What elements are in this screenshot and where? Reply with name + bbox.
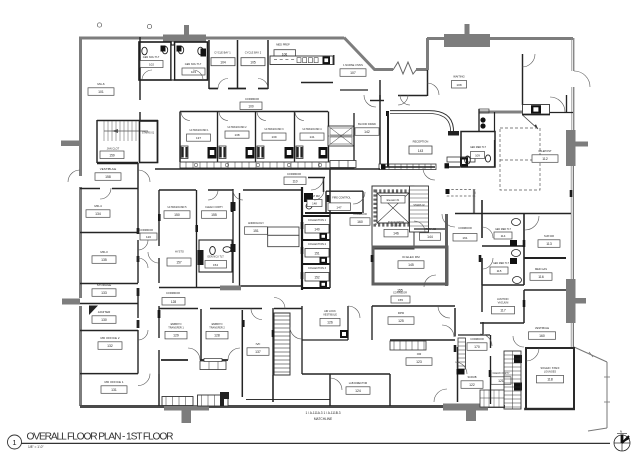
svg-text:143: 143 xyxy=(418,149,424,153)
svg-text:132: 132 xyxy=(107,344,113,348)
svg-text:133: 133 xyxy=(101,291,107,295)
svg-text:TRANSFER 2: TRANSFER 2 xyxy=(209,327,225,330)
svg-text:CORRIDOR: CORRIDOR xyxy=(245,97,259,101)
svg-text:118: 118 xyxy=(547,377,553,381)
svg-text:125: 125 xyxy=(398,319,404,323)
svg-text:FIRE CONTROL: FIRE CONTROL xyxy=(332,196,351,199)
svg-text:MED GAS: MED GAS xyxy=(535,267,547,271)
svg-text:STORAGE: STORAGE xyxy=(97,283,112,287)
svg-text:131: 131 xyxy=(111,388,117,392)
svg-text:SUP-DR: SUP-DR xyxy=(544,234,554,238)
svg-text:CORRIDOR: CORRIDOR xyxy=(470,338,484,341)
svg-text:Elevator #1: Elevator #1 xyxy=(387,199,400,202)
svg-text:VESTIBULE: VESTIBULE xyxy=(535,326,550,330)
svg-text:122: 122 xyxy=(469,383,475,387)
svg-text:MD-4: MD-4 xyxy=(94,204,102,208)
svg-text:MD-3: MD-3 xyxy=(100,250,108,254)
svg-text:IVF: IVF xyxy=(256,342,261,346)
svg-text:102: 102 xyxy=(149,63,154,67)
svg-text:154: 154 xyxy=(213,263,218,267)
svg-text:ULTRASOUND 3: ULTRASOUND 3 xyxy=(264,128,284,131)
svg-text:116: 116 xyxy=(538,275,544,279)
svg-text:GEN MED TLT: GEN MED TLT xyxy=(495,228,511,231)
svg-text:142: 142 xyxy=(364,130,370,134)
svg-text:135: 135 xyxy=(101,258,107,262)
svg-text:145: 145 xyxy=(408,263,414,267)
svg-text:ID ELEC RM: ID ELEC RM xyxy=(402,255,420,259)
svg-text:CLEAN / DIRTY: CLEAN / DIRTY xyxy=(205,206,223,209)
svg-text:RECEPTION: RECEPTION xyxy=(413,140,429,144)
svg-text:123: 123 xyxy=(416,360,422,364)
svg-text:STORAGE: STORAGE xyxy=(424,228,437,231)
svg-text:130: 130 xyxy=(101,318,107,322)
svg-text:ULTRASOUND 4: ULTRASOUND 4 xyxy=(302,128,322,131)
svg-text:LAB DIRECTOR: LAB DIRECTOR xyxy=(349,382,368,385)
svg-text:155: 155 xyxy=(398,298,403,302)
svg-text:ULTRASOUND 1: ULTRASOUND 1 xyxy=(189,129,209,132)
svg-text:ANDROLOGY: ANDROLOGY xyxy=(248,222,264,225)
svg-text:RST RM: RST RM xyxy=(310,195,319,198)
svg-text:ROOM: ROOM xyxy=(392,225,400,228)
svg-text:JANITER: JANITER xyxy=(98,310,111,314)
svg-text:CORRIDOR: CORRIDOR xyxy=(458,227,472,230)
svg-text:157: 157 xyxy=(176,261,182,265)
svg-text:MATCHLINE: MATCHLINE xyxy=(314,417,332,421)
svg-text:141: 141 xyxy=(309,135,314,139)
svg-text:JAN CLOT: JAN CLOT xyxy=(107,147,120,151)
svg-text:VESTIBULE: VESTIBULE xyxy=(100,167,117,171)
svg-text:AIR LOCK: AIR LOCK xyxy=(324,310,336,313)
svg-text:COLLECTION 1: COLLECTION 1 xyxy=(308,219,327,222)
svg-text:120: 120 xyxy=(146,235,151,239)
svg-text:159: 159 xyxy=(109,153,115,157)
svg-text:124: 124 xyxy=(355,389,361,393)
svg-text:CORRIDOR: CORRIDOR xyxy=(393,291,407,295)
svg-text:140: 140 xyxy=(314,228,320,232)
svg-text:151: 151 xyxy=(253,229,259,233)
svg-text:ID ELEVATOR: ID ELEVATOR xyxy=(388,221,404,224)
svg-text:HYSTO: HYSTO xyxy=(175,250,184,254)
svg-text:ULTRASOUND 5: ULTRASOUND 5 xyxy=(167,206,187,209)
svg-text:155: 155 xyxy=(211,213,217,217)
svg-text:CORRIDOR: CORRIDOR xyxy=(139,228,153,232)
svg-text:ULTRASOUND 2: ULTRASOUND 2 xyxy=(227,126,247,129)
svg-text:104: 104 xyxy=(220,60,226,64)
svg-text:128: 128 xyxy=(214,333,220,337)
svg-text:SCRUB: SCRUB xyxy=(467,375,476,379)
svg-text:144: 144 xyxy=(427,235,433,239)
svg-text:109: 109 xyxy=(475,154,480,158)
svg-text:160: 160 xyxy=(357,220,363,224)
svg-text:147: 147 xyxy=(336,205,341,209)
svg-text:WAITING: WAITING xyxy=(453,75,464,79)
svg-text:CORRIDOR: CORRIDOR xyxy=(166,291,180,295)
svg-text:115: 115 xyxy=(497,269,502,273)
svg-text:139: 139 xyxy=(271,135,276,139)
svg-text:152: 152 xyxy=(314,276,320,280)
svg-text:MED PREP: MED PREP xyxy=(276,43,290,47)
svg-text:EMBRYO: EMBRYO xyxy=(212,323,223,326)
svg-text:CYCLE BAY 2: CYCLE BAY 2 xyxy=(245,51,262,55)
svg-text:GEN MED TLT: GEN MED TLT xyxy=(493,262,509,265)
svg-text:SOILED / STAFF: SOILED / STAFF xyxy=(541,367,560,370)
svg-text:137: 137 xyxy=(255,350,261,354)
svg-text:129: 129 xyxy=(173,333,179,337)
svg-text:N: N xyxy=(620,430,622,434)
svg-text:114: 114 xyxy=(501,234,506,238)
svg-text:CORRIDOR: CORRIDOR xyxy=(287,172,301,176)
svg-text:MD OFFICE 2: MD OFFICE 2 xyxy=(100,336,119,340)
svg-text:OVERALL FLOOR PLAN - 1ST FLOOR: OVERALL FLOOR PLAN - 1ST FLOOR xyxy=(27,432,174,443)
svg-text:100: 100 xyxy=(248,105,254,109)
svg-text:VESTIBULE: VESTIBULE xyxy=(323,314,337,317)
svg-text:GEN NCU TLT: GEN NCU TLT xyxy=(185,63,202,66)
svg-text:GEN MED TLT: GEN MED TLT xyxy=(470,146,486,149)
svg-text:JANITOR /: JANITOR / xyxy=(497,298,509,301)
svg-text:STAIRS 01: STAIRS 01 xyxy=(142,132,155,135)
svg-text:GEN NCU TLT: GEN NCU TLT xyxy=(207,256,224,259)
svg-text:134: 134 xyxy=(95,212,101,216)
svg-text:GEN NCU TLT: GEN NCU TLT xyxy=(143,56,160,59)
svg-text:105: 105 xyxy=(250,60,256,64)
svg-text:MILEPOST: MILEPOST xyxy=(538,149,552,153)
svg-text:VACUUM: VACUUM xyxy=(498,302,509,305)
svg-text:101: 101 xyxy=(98,90,104,94)
svg-text:COLLECTION 2: COLLECTION 2 xyxy=(308,243,327,246)
svg-text:1/8" = 1'-0": 1/8" = 1'-0" xyxy=(28,445,44,449)
svg-text:158: 158 xyxy=(105,175,111,179)
svg-text:138: 138 xyxy=(234,133,239,137)
svg-text:110: 110 xyxy=(292,180,297,184)
svg-text:146: 146 xyxy=(393,231,399,235)
svg-text:151: 151 xyxy=(314,252,320,256)
svg-text:TRANSFER 1: TRANSFER 1 xyxy=(168,327,184,330)
svg-text:CLEAN / DIRTY: CLEAN / DIRTY xyxy=(492,372,509,375)
svg-text:161: 161 xyxy=(462,236,467,240)
svg-text:COLLECTION 3: COLLECTION 3 xyxy=(308,267,327,270)
svg-text:150: 150 xyxy=(174,213,180,217)
svg-text:113: 113 xyxy=(546,242,552,246)
svg-text:DPD: DPD xyxy=(398,311,405,315)
svg-text:LOUNGES: LOUNGES xyxy=(544,371,557,374)
svg-text:STAIRS 02: STAIRS 02 xyxy=(413,204,425,207)
svg-text:1: 1 xyxy=(12,438,16,447)
svg-text:CYCLE BAY 1: CYCLE BAY 1 xyxy=(214,51,231,55)
svg-text:MA-6: MA-6 xyxy=(97,82,104,86)
svg-text:160: 160 xyxy=(539,334,545,338)
svg-text:108: 108 xyxy=(456,83,461,87)
svg-text:EMBRYO: EMBRYO xyxy=(171,323,182,326)
svg-text:1 / A-111A.3 1 / A-111B.3: 1 / A-111A.3 1 / A-111B.3 xyxy=(305,411,340,415)
svg-text:112: 112 xyxy=(542,157,548,161)
svg-text:137: 137 xyxy=(196,136,201,140)
svg-text:CORRIDOR: CORRIDOR xyxy=(353,213,367,216)
svg-text:BLOOD DRAW: BLOOD DRAW xyxy=(358,122,376,126)
svg-text:MD OFFICE 1: MD OFFICE 1 xyxy=(104,380,123,384)
svg-text:170: 170 xyxy=(474,345,480,349)
svg-text:148: 148 xyxy=(312,202,317,206)
svg-text:117: 117 xyxy=(500,308,506,312)
svg-text:128: 128 xyxy=(171,300,177,304)
svg-text:107: 107 xyxy=(350,71,356,75)
svg-text:121: 121 xyxy=(498,379,504,383)
svg-text:1 NURSE 3 MVS: 1 NURSE 3 MVS xyxy=(343,63,363,67)
svg-text:126: 126 xyxy=(327,320,333,324)
